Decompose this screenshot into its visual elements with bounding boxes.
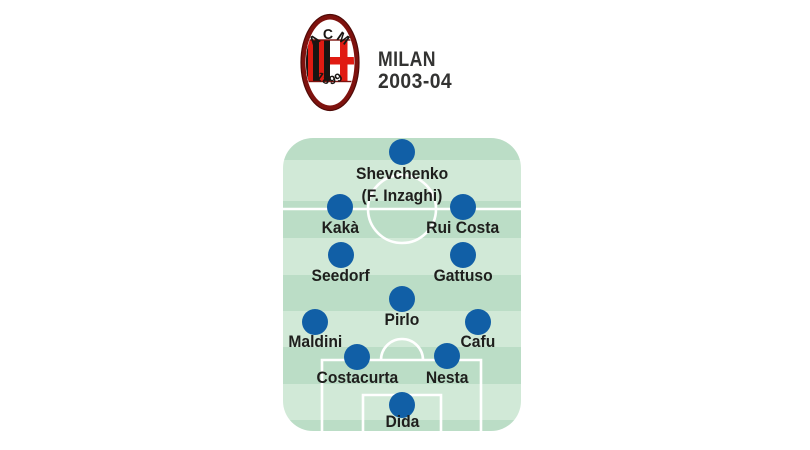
player-dot (434, 343, 460, 369)
player-subname: (F. Inzaghi) (362, 186, 443, 206)
player-dot (389, 286, 415, 312)
player-dot (450, 242, 476, 268)
player-dot (344, 344, 370, 370)
formation-infographic: ACM 1899 MILAN 2003-04 Shevchenko (F. In… (0, 0, 810, 450)
player-name: Kakà (321, 218, 358, 238)
ac-milan-crest-logo: ACM 1899 (300, 13, 360, 112)
player-name: Costacurta (316, 368, 398, 388)
player-name: Seedorf (312, 266, 370, 286)
player-name: Pirlo (385, 310, 420, 330)
penalty-arc (381, 339, 423, 360)
header: MILAN 2003-04 (378, 49, 459, 93)
pitch: Shevchenko (F. Inzaghi) Kakà Rui Costa S… (283, 138, 521, 431)
player-name: Maldini (288, 332, 342, 352)
club-name: MILAN (378, 49, 446, 71)
player-name: Gattuso (433, 266, 492, 286)
player-name: Shevchenko (356, 164, 448, 184)
player-dot (328, 242, 354, 268)
player-dot (389, 139, 415, 165)
season: 2003-04 (378, 71, 452, 93)
player-dot (327, 194, 353, 220)
player-dot (450, 194, 476, 220)
player-name: Rui Costa (427, 218, 500, 238)
player-name: Dida (385, 412, 419, 431)
player-name: Nesta (426, 368, 469, 388)
player-name: Cafu (461, 332, 496, 352)
